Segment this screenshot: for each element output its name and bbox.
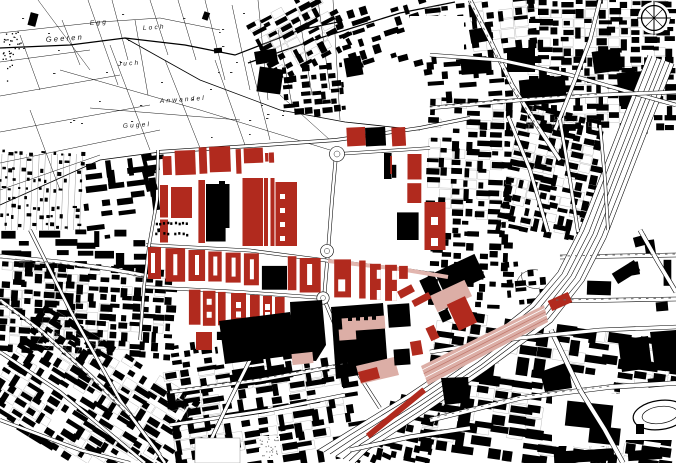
svg-text:Egg: Egg: [90, 19, 109, 27]
